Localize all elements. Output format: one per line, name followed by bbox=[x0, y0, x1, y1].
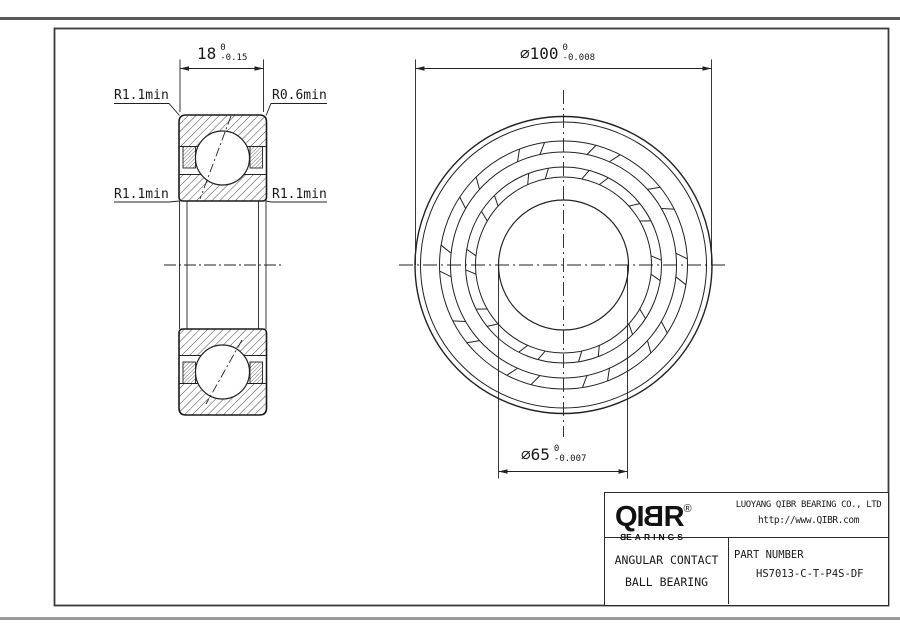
cage-lower-right bbox=[250, 362, 263, 384]
section-view bbox=[164, 115, 281, 415]
front-view-centerlines bbox=[399, 90, 728, 437]
cage-lower-left bbox=[183, 362, 196, 384]
dim-bore-text: ∅65 0 -0.007 bbox=[521, 446, 586, 464]
product-type-line1: ANGULAR CONTACT bbox=[605, 549, 728, 571]
product-type-cell: ANGULAR CONTACT BALL BEARING bbox=[605, 538, 729, 604]
product-type-line2: BALL BEARING bbox=[605, 571, 728, 593]
dim-bore-tol-upper: 0 bbox=[554, 444, 587, 454]
part-number-label: PART NUMBER bbox=[734, 549, 888, 561]
radius-label-mid-right: R1.1min bbox=[272, 188, 327, 202]
title-block: QIBR® BEARINGS LUOYANG QIBR BEARING CO.,… bbox=[604, 492, 889, 606]
diameter-symbol: ∅ bbox=[520, 45, 530, 62]
diameter-symbol: ∅ bbox=[521, 446, 531, 463]
cage-upper-left bbox=[183, 147, 196, 169]
dim-bore-value: 65 bbox=[531, 446, 550, 463]
dim-width-value: 18 bbox=[197, 45, 216, 62]
cage-upper-right bbox=[250, 147, 263, 169]
part-number-cell: PART NUMBER HS7013-C-T-P4S-DF bbox=[729, 538, 888, 604]
dim-width-tol-upper: 0 bbox=[220, 43, 247, 53]
ball-lower bbox=[196, 345, 250, 399]
radius-label-mid-left: R1.1min bbox=[114, 188, 169, 202]
title-block-header-row: QIBR® BEARINGS LUOYANG QIBR BEARING CO.,… bbox=[605, 493, 888, 538]
dim-od-value: 100 bbox=[530, 45, 559, 62]
dim-width-lines bbox=[180, 60, 264, 113]
company-info: LUOYANG QIBR BEARING CO., LTD http://www… bbox=[729, 493, 888, 537]
drawing-sheet: 18 0 -0.15 ∅100 0 -0.008 ∅65 0 -0.007 R1… bbox=[0, 0, 900, 636]
dim-width-text: 18 0 -0.15 bbox=[197, 45, 247, 63]
dim-od-tol-lower: -0.008 bbox=[563, 53, 596, 63]
company-website: http://www.QIBR.com bbox=[729, 515, 888, 526]
title-block-body-row: ANGULAR CONTACT BALL BEARING PART NUMBER… bbox=[605, 538, 888, 604]
dim-width-tol-lower: -0.15 bbox=[220, 53, 247, 63]
qibr-logo: QIBR® BEARINGS bbox=[605, 493, 729, 537]
part-number-value: HS7013-C-T-P4S-DF bbox=[756, 568, 888, 580]
registered-mark: ® bbox=[684, 503, 692, 515]
radius-label-top-left: R1.1min bbox=[114, 89, 169, 103]
dim-od-text: ∅100 0 -0.008 bbox=[520, 45, 595, 63]
dim-od-tol-upper: 0 bbox=[563, 43, 596, 53]
company-name: LUOYANG QIBR BEARING CO., LTD bbox=[729, 500, 888, 511]
dim-bore-tol-lower: -0.007 bbox=[554, 454, 587, 464]
radius-label-top-right: R0.6min bbox=[272, 89, 327, 103]
logo-wordmark: QIBR® bbox=[615, 495, 729, 532]
